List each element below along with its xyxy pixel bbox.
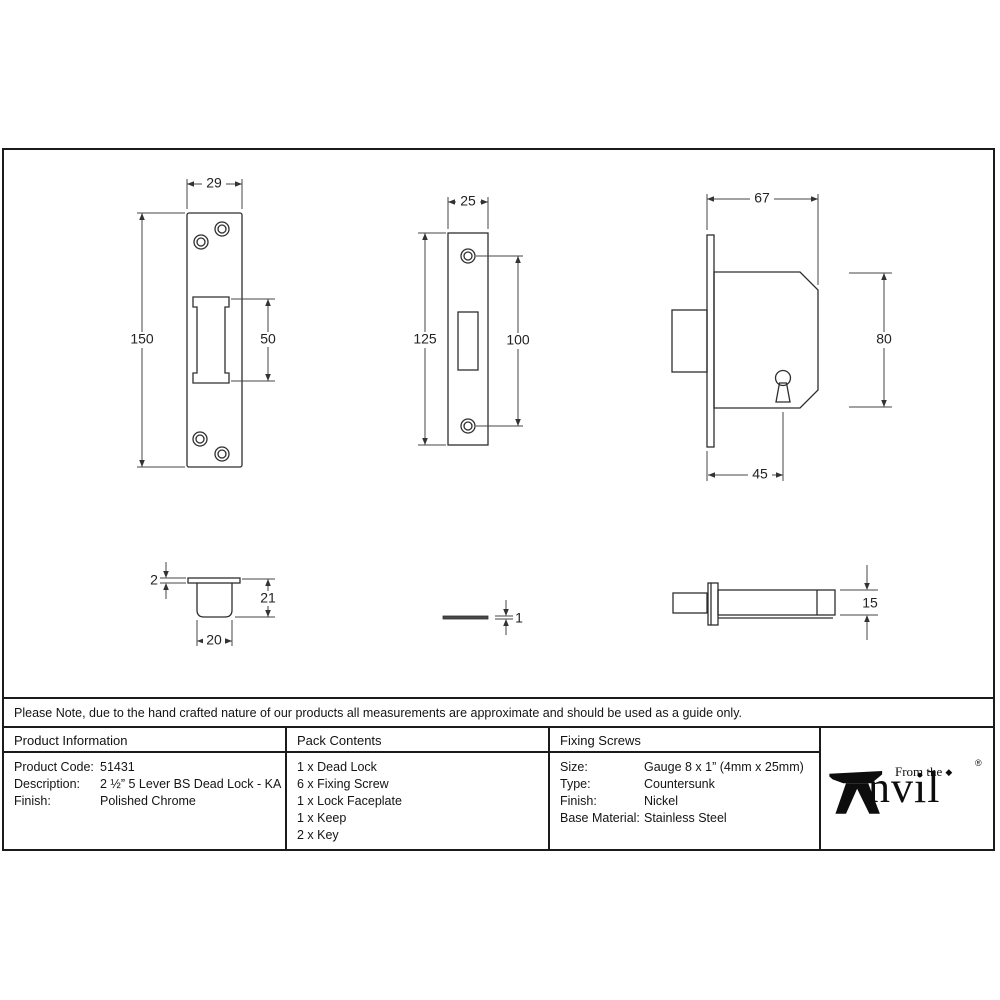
case-top-view-drawing: 15 xyxy=(673,565,881,640)
finish-label: Finish: xyxy=(14,793,100,810)
dim-plate-thickness: 1 xyxy=(515,610,523,626)
description-value: 2 ½” 5 Lever BS Dead Lock - KA xyxy=(100,776,281,793)
pack-item: 2 x Key xyxy=(297,827,548,844)
screw-type-value: Countersunk xyxy=(644,776,715,793)
dim-faceplate-width: 25 xyxy=(460,193,476,209)
dim-cup-width: 20 xyxy=(206,632,222,648)
finish-row: Finish: Polished Chrome xyxy=(14,793,285,810)
note-text: Please Note, due to the hand crafted nat… xyxy=(14,706,742,720)
finish-value: Polished Chrome xyxy=(100,793,196,810)
drawings-svg: 29 150 50 xyxy=(4,150,993,697)
screw-finish-value: Nickel xyxy=(644,793,678,810)
fixing-screws-column: Fixing Screws Size: Gauge 8 x 1” (4mm x … xyxy=(548,728,819,849)
screw-material-row: Base Material: Stainless Steel xyxy=(560,810,819,827)
thin-plate-drawing: 1 xyxy=(443,600,523,635)
pack-item: 1 x Dead Lock xyxy=(297,759,548,776)
technical-drawings: 29 150 50 xyxy=(4,150,993,699)
product-code-label: Product Code: xyxy=(14,759,100,776)
measurement-note-row: Please Note, due to the hand crafted nat… xyxy=(4,699,993,728)
info-table: Product Information Product Code: 51431 … xyxy=(4,728,993,849)
lock-faceplate-drawing: 25 125 100 xyxy=(410,193,533,445)
pack-item: 6 x Fixing Screw xyxy=(297,776,548,793)
dim-cup-flange: 2 xyxy=(150,572,158,588)
dim-faceplate-holes: 100 xyxy=(506,332,530,348)
logo-tagline: From the◆ xyxy=(895,764,952,780)
dim-case-depth: 15 xyxy=(862,595,878,611)
lock-case-drawing: 67 80 45 xyxy=(672,190,896,482)
screw-material-value: Stainless Steel xyxy=(644,810,727,827)
screw-type-label: Type: xyxy=(560,776,644,793)
product-information-header: Product Information xyxy=(4,728,285,753)
pack-contents-column: Pack Contents 1 x Dead Lock 6 x Fixing S… xyxy=(285,728,548,849)
screw-material-label: Base Material: xyxy=(560,810,644,827)
product-information-column: Product Information Product Code: 51431 … xyxy=(4,728,285,849)
dim-case-backset: 45 xyxy=(752,466,768,482)
description-row: Description: 2 ½” 5 Lever BS Dead Lock -… xyxy=(14,776,285,793)
diamond-icon: ◆ xyxy=(945,767,952,777)
dust-cup-drawing: 2 21 20 xyxy=(150,562,279,648)
dim-case-height: 80 xyxy=(876,331,892,347)
screw-size-label: Size: xyxy=(560,759,644,776)
dim-cup-depth: 21 xyxy=(260,590,276,606)
brand-logo-cell: nvil From the◆ ® xyxy=(819,728,993,849)
pack-item: 1 x Lock Faceplate xyxy=(297,793,548,810)
product-code-row: Product Code: 51431 xyxy=(14,759,285,776)
fixing-screws-header: Fixing Screws xyxy=(550,728,819,753)
dim-keep-cutout: 50 xyxy=(260,331,276,347)
pack-item: 1 x Keep xyxy=(297,810,548,827)
screw-type-row: Type: Countersunk xyxy=(560,776,819,793)
registered-mark: ® xyxy=(975,758,982,768)
dim-keep-height: 150 xyxy=(130,331,154,347)
datasheet-frame: 29 150 50 xyxy=(2,148,995,851)
keep-plate-drawing: 29 150 50 xyxy=(127,175,279,467)
from-the-anvil-logo: nvil From the◆ ® xyxy=(828,758,986,820)
dim-faceplate-height: 125 xyxy=(413,331,437,347)
product-code-value: 51431 xyxy=(100,759,135,776)
dim-case-width: 67 xyxy=(754,190,770,206)
description-label: Description: xyxy=(14,776,100,793)
screw-finish-row: Finish: Nickel xyxy=(560,793,819,810)
screw-size-value: Gauge 8 x 1” (4mm x 25mm) xyxy=(644,759,804,776)
pack-contents-header: Pack Contents xyxy=(287,728,548,753)
screw-finish-label: Finish: xyxy=(560,793,644,810)
dim-keep-width: 29 xyxy=(206,175,222,191)
screw-size-row: Size: Gauge 8 x 1” (4mm x 25mm) xyxy=(560,759,819,776)
